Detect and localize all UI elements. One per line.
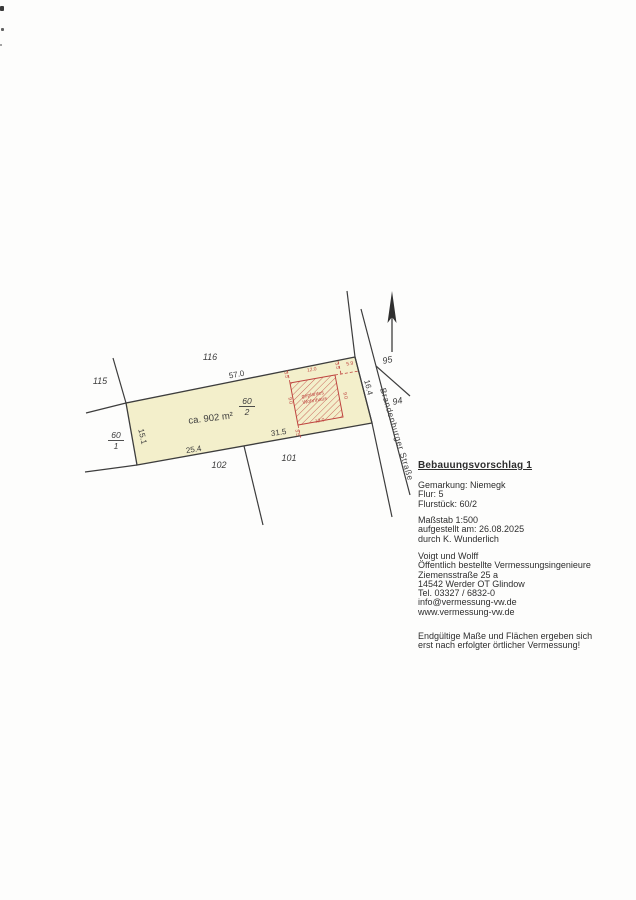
site-plan-drawing: geplantes Wohnhaus 12.0 12.0 9.0 9.0 3.5… <box>0 0 636 900</box>
fraction-60-1-denominator: 1 <box>114 441 119 451</box>
boundary-115-60-1 <box>86 403 126 413</box>
fraction-60-1-numerator: 60 <box>111 430 121 440</box>
gemarkung-line: Gemarkung: Niemegk <box>418 481 623 490</box>
flurstueck-line: Flurstück: 60/2 <box>418 500 623 509</box>
fraction-60-2-denominator: 2 <box>244 407 250 417</box>
parcel-label-115: 115 <box>93 376 108 386</box>
boundary-102-101 <box>244 446 263 525</box>
parcel-fraction-60-1: 60 1 <box>108 430 124 451</box>
boundary-60-1-102 <box>85 465 137 472</box>
disclaimer-note: Endgültige Maße und Flächen ergeben sich… <box>418 632 623 651</box>
dist-to-street-label: 5.9 <box>346 360 354 367</box>
boundary-115-upper <box>113 358 126 403</box>
meta-block: Maßstab 1:500 aufgestellt am: 26.08.2025… <box>418 516 623 544</box>
location-block: Gemarkung: Niemegk Flur: 5 Flurstück: 60… <box>418 481 623 509</box>
parcel-label-116: 116 <box>203 352 217 362</box>
note-line2: erst nach erfolgter örtlicher Vermessung… <box>418 641 623 650</box>
north-arrow <box>388 291 397 352</box>
plan-title: Bebauungsvorschlag 1 <box>418 461 623 470</box>
parcel-label-101: 101 <box>281 453 296 463</box>
company-block: Voigt und Wolff Öffentlich bestellte Ver… <box>418 552 623 617</box>
durch-line: durch K. Wunderlich <box>418 535 623 544</box>
fraction-60-2-numerator: 60 <box>242 396 252 406</box>
parcel-label-102: 102 <box>211 460 226 470</box>
parcel-label-95: 95 <box>381 354 394 366</box>
scanned-document-page: geplantes Wohnhaus 12.0 12.0 9.0 9.0 3.5… <box>0 0 636 900</box>
dim-top-edge: 57.0 <box>228 369 245 381</box>
company-web: www.vermessung-vw.de <box>418 608 623 617</box>
